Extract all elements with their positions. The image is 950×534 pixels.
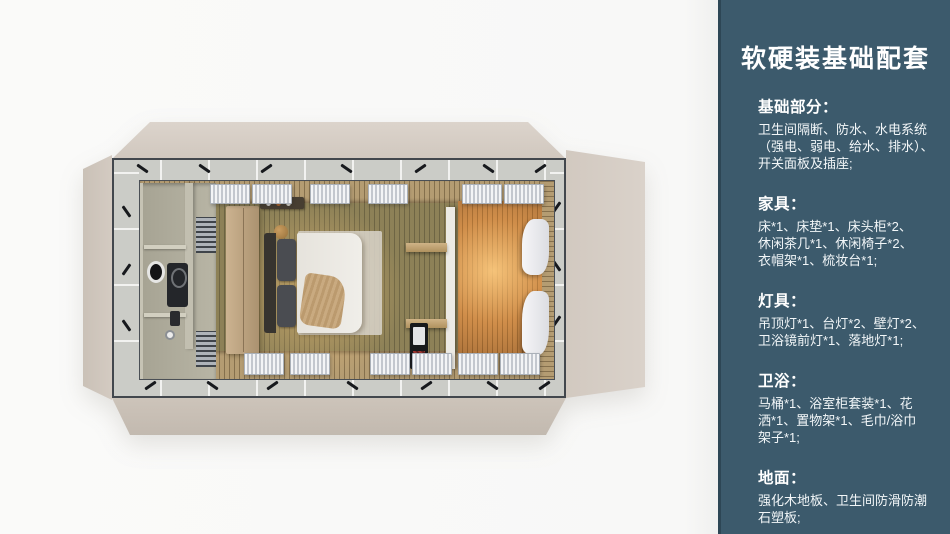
section-heading: 灯具： — [758, 289, 938, 311]
section-heading: 卫浴： — [758, 369, 938, 391]
throw-blanket — [299, 272, 348, 329]
blind-panel — [252, 184, 292, 204]
curtain — [522, 291, 549, 355]
blind-panel — [244, 353, 284, 375]
deck-ties-top — [114, 160, 564, 180]
tent-flap-left — [83, 153, 113, 402]
blind-panel — [462, 184, 502, 204]
section-heading: 地面： — [758, 466, 938, 488]
blind-panel — [290, 353, 330, 375]
section-text: 强化木地板、卫生间防滑防潮 石塑板; — [758, 492, 938, 526]
section-lighting: 灯具： 吊顶灯*1、台灯*2、壁灯*2、 卫浴镜前灯*1、落地灯*1; — [758, 289, 938, 349]
slide-canvas: 软硬装基础配套 基础部分： 卫生间隔断、防水、水电系统 （强电、弱电、给水、排水… — [0, 0, 950, 534]
tent-flap-right — [566, 148, 646, 400]
section-heading: 家具： — [758, 192, 938, 214]
section-text: 床*1、床垫*1、床头柜*2、 休闲茶几*1、休闲椅子*2、 衣帽架*1、梳妆台… — [758, 218, 938, 269]
section-text: 吊顶灯*1、台灯*2、壁灯*2、 卫浴镜前灯*1、落地灯*1; — [758, 315, 938, 349]
shower-head — [165, 330, 175, 340]
bathroom-shelf — [144, 245, 186, 249]
section-flooring: 地面： 强化木地板、卫生间防滑防潮 石塑板; — [758, 466, 938, 526]
blind-panel — [500, 353, 540, 375]
vanity-mirror — [147, 261, 165, 283]
pillow — [277, 239, 296, 281]
towel-rack — [196, 331, 216, 367]
section-text: 卫生间隔断、防水、水电系统 （强电、弱电、给水、排水）、 开关面板及插座; — [758, 121, 938, 172]
floorplan-render — [0, 0, 718, 534]
blind-panel — [370, 353, 410, 375]
tent-flap-bottom — [112, 397, 567, 436]
section-text: 马桶*1、浴室柜套装*1、花 洒*1、置物架*1、毛巾/浴巾 架子*1; — [758, 395, 938, 446]
pillow — [277, 285, 296, 327]
section-basics: 基础部分： 卫生间隔断、防水、水电系统 （强电、弱电、给水、排水）、 开关面板及… — [758, 95, 938, 172]
toilet — [170, 311, 180, 326]
structure-frame — [112, 158, 566, 398]
wardrobe-cabinet — [226, 206, 259, 354]
spec-panel: 软硬装基础配套 基础部分： 卫生间隔断、防水、水电系统 （强电、弱电、给水、排水… — [718, 0, 950, 534]
headboard — [264, 233, 276, 333]
bathroom-area — [140, 183, 216, 379]
section-furniture: 家具： 床*1、床垫*1、床头柜*2、 休闲茶几*1、休闲椅子*2、 衣帽架*1… — [758, 192, 938, 269]
deck-ties-left — [114, 160, 139, 396]
wall-shelf — [406, 243, 447, 252]
towel-rack — [196, 217, 216, 253]
divider-wall — [446, 207, 455, 369]
blind-panel — [458, 353, 498, 375]
bed — [264, 233, 362, 333]
blind-panel — [310, 184, 350, 204]
blind-panel — [368, 184, 408, 204]
curtain — [522, 219, 549, 275]
panel-title: 软硬装基础配套 — [721, 44, 950, 74]
room-interior — [139, 180, 555, 380]
section-heading: 基础部分： — [758, 95, 938, 117]
section-bathroom: 卫浴： 马桶*1、浴室柜套装*1、花 洒*1、置物架*1、毛巾/浴巾 架子*1; — [758, 369, 938, 446]
panel-body: 基础部分： 卫生间隔断、防水、水电系统 （强电、弱电、给水、排水）、 开关面板及… — [721, 74, 950, 526]
tent-flap-top — [112, 121, 567, 160]
bathroom-sink — [167, 263, 188, 307]
blind-panel — [210, 184, 250, 204]
blind-panel — [504, 184, 544, 204]
blind-panel — [412, 353, 452, 375]
